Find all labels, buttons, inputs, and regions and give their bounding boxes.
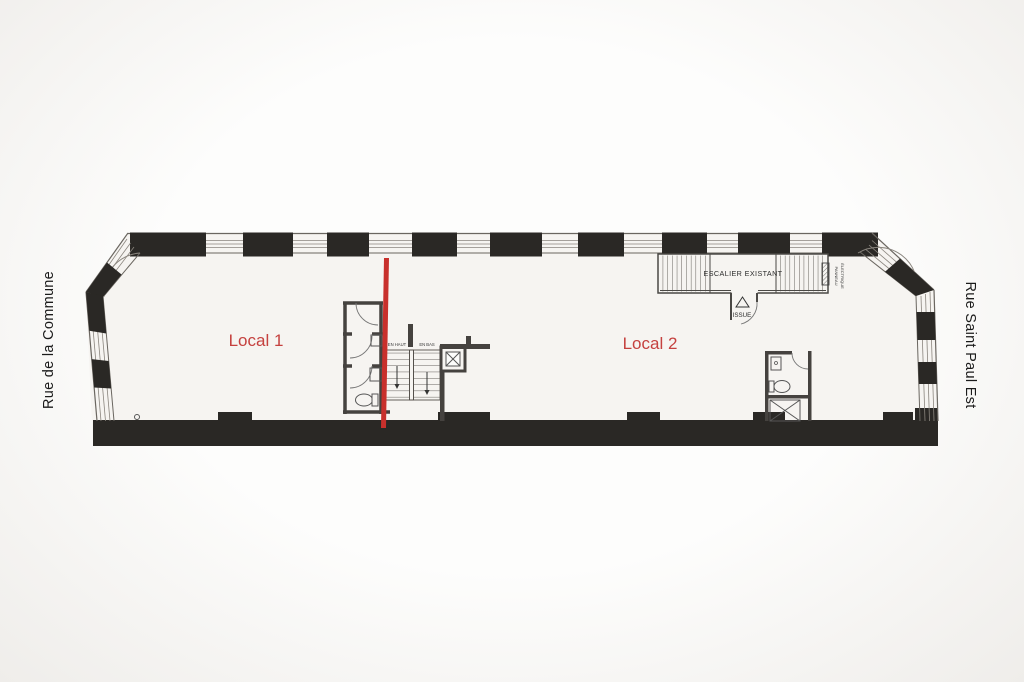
unit-divider-line <box>384 258 387 428</box>
stair-down-label: EN BAS <box>419 342 435 347</box>
toilet-tank <box>372 394 378 406</box>
street-label-right: Rue Saint Paul Est <box>962 281 978 408</box>
stairwell-wall <box>440 370 445 421</box>
stair-treads-left <box>660 256 710 292</box>
pilaster <box>627 412 660 421</box>
local1-label: Local 1 <box>229 331 284 350</box>
stair-treads-right <box>777 256 827 292</box>
duct-shaft-x <box>446 352 460 366</box>
pilaster <box>883 412 913 421</box>
electrical-panel-label-1: PANNEAU <box>834 266 839 285</box>
street-label-left: Rue de la Commune <box>41 271 57 409</box>
wall-stub <box>466 336 471 345</box>
stair-post <box>408 324 413 347</box>
existing-stair-label: ESCALIER EXISTANT <box>704 269 783 278</box>
toilet <box>356 394 373 406</box>
local2-label: Local 2 <box>623 334 678 353</box>
floor-plan: EN HAUT EN BAS ESCALIER EXISTANT ISSUE P… <box>0 0 1024 682</box>
stair-up-label: EN HAUT <box>388 342 407 347</box>
electrical-panel-label-2: ÉLECTRIQUE <box>840 263 845 289</box>
pilaster <box>438 412 490 421</box>
toilet <box>774 381 790 393</box>
exit-label: ISSUE <box>733 312 752 319</box>
electrical-panel-box <box>822 263 829 285</box>
toilet-tank <box>769 381 774 392</box>
stair-divider <box>410 350 414 400</box>
floor-plan-photo: EN HAUT EN BAS ESCALIER EXISTANT ISSUE P… <box>0 0 1024 682</box>
pilaster <box>218 412 252 421</box>
